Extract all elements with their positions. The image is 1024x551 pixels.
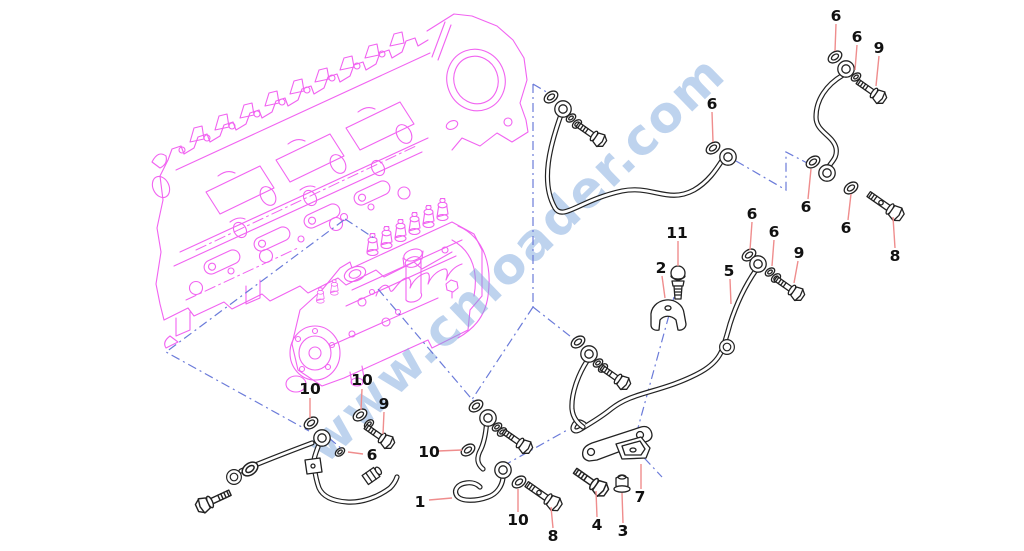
callout-2: 2 bbox=[656, 259, 667, 277]
tee-block bbox=[305, 458, 322, 474]
leader-line bbox=[361, 389, 362, 410]
pipe-top-right bbox=[816, 75, 843, 170]
callout-10: 10 bbox=[351, 371, 373, 389]
callout-6: 6 bbox=[707, 95, 718, 113]
clamp bbox=[651, 300, 686, 330]
banjo-fitting bbox=[480, 410, 496, 426]
callout-labels: 66966686691125101096101108437 bbox=[299, 7, 900, 545]
callout-3: 3 bbox=[618, 522, 629, 540]
callout-6: 6 bbox=[852, 28, 863, 46]
leader-line bbox=[596, 491, 597, 517]
banjo-fitting bbox=[838, 61, 854, 77]
callout-10: 10 bbox=[299, 380, 321, 398]
union-fitting bbox=[362, 465, 383, 485]
pipe-1-hook bbox=[456, 478, 503, 500]
leader-line bbox=[429, 498, 452, 500]
banjo-fitting bbox=[720, 149, 736, 165]
callout-10: 10 bbox=[507, 511, 529, 529]
callout-5: 5 bbox=[724, 262, 735, 280]
leader-line bbox=[772, 240, 774, 266]
banjo-fitting bbox=[581, 346, 597, 362]
leader-line bbox=[730, 279, 731, 304]
callout-11: 11 bbox=[666, 224, 688, 242]
callout-6: 6 bbox=[831, 7, 842, 25]
callout-10: 10 bbox=[418, 443, 440, 461]
banjo-bolt bbox=[864, 188, 906, 224]
callout-9: 9 bbox=[379, 395, 390, 413]
banjo-fitting bbox=[227, 470, 242, 485]
callout-6: 6 bbox=[841, 219, 852, 237]
leader-line bbox=[383, 412, 384, 434]
callout-6: 6 bbox=[367, 446, 378, 464]
callout-8: 8 bbox=[548, 527, 559, 545]
washer bbox=[842, 180, 860, 197]
callout-6: 6 bbox=[769, 223, 780, 241]
callout-4: 4 bbox=[592, 516, 603, 534]
bracket bbox=[583, 427, 652, 462]
leader-line bbox=[848, 194, 851, 220]
bolt bbox=[854, 76, 889, 106]
leader-line bbox=[662, 276, 665, 298]
banjo-fitting bbox=[314, 430, 330, 446]
callout-7: 7 bbox=[635, 488, 646, 506]
callout-9: 9 bbox=[874, 39, 885, 57]
washer bbox=[804, 154, 822, 171]
callout-6: 6 bbox=[801, 198, 812, 216]
flange-nut bbox=[614, 475, 630, 492]
bolt bbox=[194, 486, 233, 515]
callout-6: 6 bbox=[747, 205, 758, 223]
screw bbox=[671, 266, 685, 299]
parts-diagram: www.cnloader.com bbox=[0, 0, 1024, 551]
bolt bbox=[598, 362, 633, 392]
banjo-fitting bbox=[495, 462, 511, 478]
bolt bbox=[772, 273, 807, 303]
leader-line bbox=[712, 112, 713, 142]
banjo-fitting bbox=[720, 340, 735, 355]
callout-1: 1 bbox=[415, 493, 426, 511]
banjo-fitting bbox=[819, 165, 835, 181]
leader-line bbox=[622, 493, 623, 523]
bolt bbox=[571, 464, 611, 499]
leader-line bbox=[893, 217, 895, 248]
callout-8: 8 bbox=[890, 247, 901, 265]
banjo-fitting bbox=[750, 256, 766, 272]
leader-line bbox=[794, 261, 798, 283]
leader-line bbox=[750, 222, 752, 250]
leader-line bbox=[808, 169, 811, 199]
leader-line bbox=[438, 450, 462, 451]
washer bbox=[704, 140, 722, 157]
callout-9: 9 bbox=[794, 244, 805, 262]
leader-line bbox=[876, 56, 879, 86]
leader-line bbox=[855, 45, 857, 70]
pipe-1-riser bbox=[478, 420, 487, 469]
washer bbox=[510, 474, 528, 491]
parts-diagram-canvas: www.cnloader.com bbox=[0, 0, 1024, 551]
banjo-bolt bbox=[522, 478, 564, 514]
leader-line bbox=[835, 24, 836, 51]
bolt bbox=[500, 426, 535, 456]
